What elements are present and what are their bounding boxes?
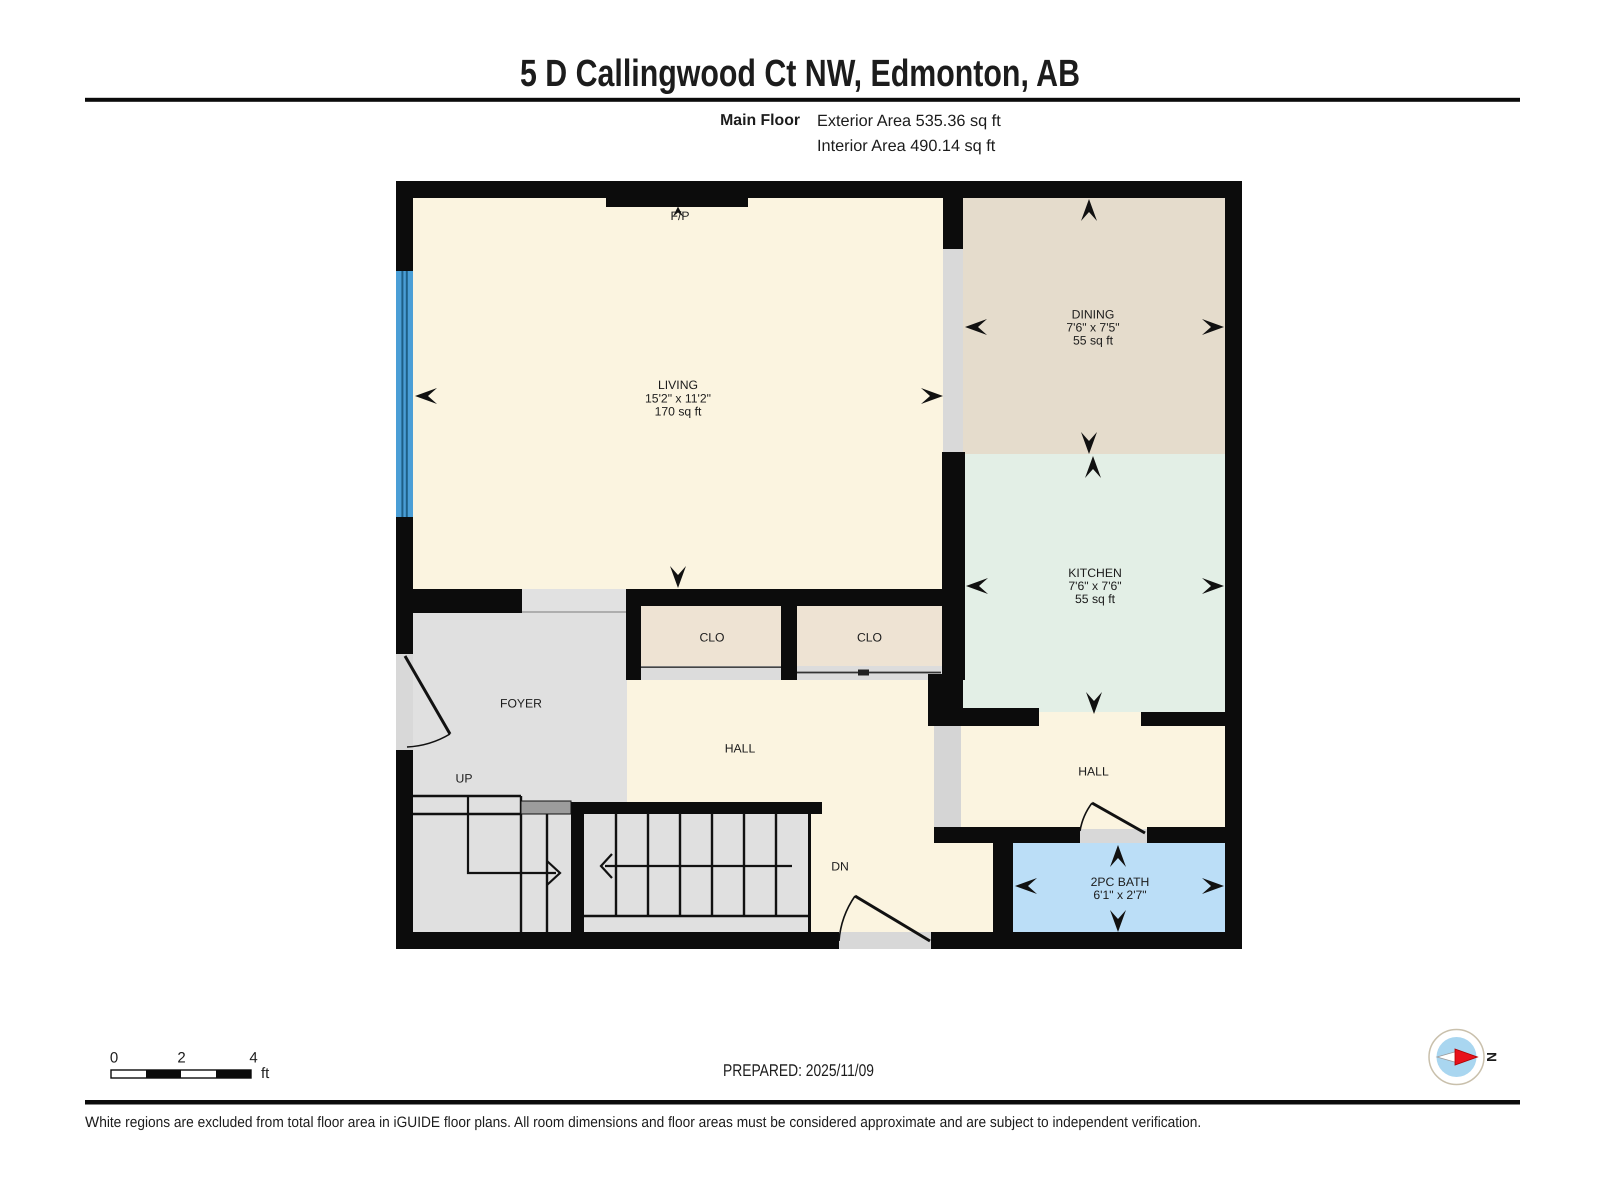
svg-text:2PC BATH: 2PC BATH bbox=[1091, 875, 1150, 889]
svg-text:2: 2 bbox=[177, 1050, 185, 1067]
svg-text:LIVING: LIVING bbox=[658, 378, 698, 392]
svg-text:F/P: F/P bbox=[671, 209, 690, 223]
svg-text:7'6" x 7'5": 7'6" x 7'5" bbox=[1066, 320, 1119, 334]
svg-text:N: N bbox=[1484, 1052, 1499, 1062]
svg-text:Interior Area 490.14 sq ft: Interior Area 490.14 sq ft bbox=[817, 137, 996, 155]
svg-text:6'1" x 2'7": 6'1" x 2'7" bbox=[1093, 888, 1146, 902]
svg-text:7'6" x 7'6": 7'6" x 7'6" bbox=[1068, 579, 1121, 593]
svg-text:55 sq ft: 55 sq ft bbox=[1073, 333, 1114, 347]
svg-text:15'2" x 11'2": 15'2" x 11'2" bbox=[645, 392, 711, 406]
svg-text:170 sq ft: 170 sq ft bbox=[655, 405, 702, 419]
svg-text:HALL: HALL bbox=[1078, 765, 1109, 779]
svg-text:0: 0 bbox=[110, 1050, 118, 1067]
svg-text:55 sq ft: 55 sq ft bbox=[1075, 592, 1116, 606]
svg-text:Main Floor: Main Floor bbox=[720, 112, 800, 129]
svg-text:5 D Callingwood Ct NW, Edmonto: 5 D Callingwood Ct NW, Edmonton, AB bbox=[520, 53, 1080, 95]
svg-text:Exterior Area 535.36 sq ft: Exterior Area 535.36 sq ft bbox=[817, 112, 1001, 130]
svg-text:hite regions are excluded from: hite regions are excluded from total flo… bbox=[99, 1114, 1201, 1131]
svg-text:FOYER: FOYER bbox=[500, 697, 542, 711]
svg-text:HALL: HALL bbox=[725, 742, 756, 756]
svg-text:DINING: DINING bbox=[1072, 307, 1115, 321]
svg-text:4: 4 bbox=[249, 1050, 257, 1067]
svg-text:PREPARED: 2025/11/09: PREPARED: 2025/11/09 bbox=[723, 1061, 874, 1080]
svg-text:ft: ft bbox=[261, 1065, 270, 1082]
svg-text:UP: UP bbox=[456, 772, 473, 786]
svg-text:DN: DN bbox=[831, 860, 849, 874]
svg-text:CLO: CLO bbox=[699, 631, 724, 645]
svg-text:W: W bbox=[85, 1114, 100, 1131]
svg-text:CLO: CLO bbox=[857, 631, 882, 645]
svg-text:KITCHEN: KITCHEN bbox=[1068, 566, 1122, 580]
